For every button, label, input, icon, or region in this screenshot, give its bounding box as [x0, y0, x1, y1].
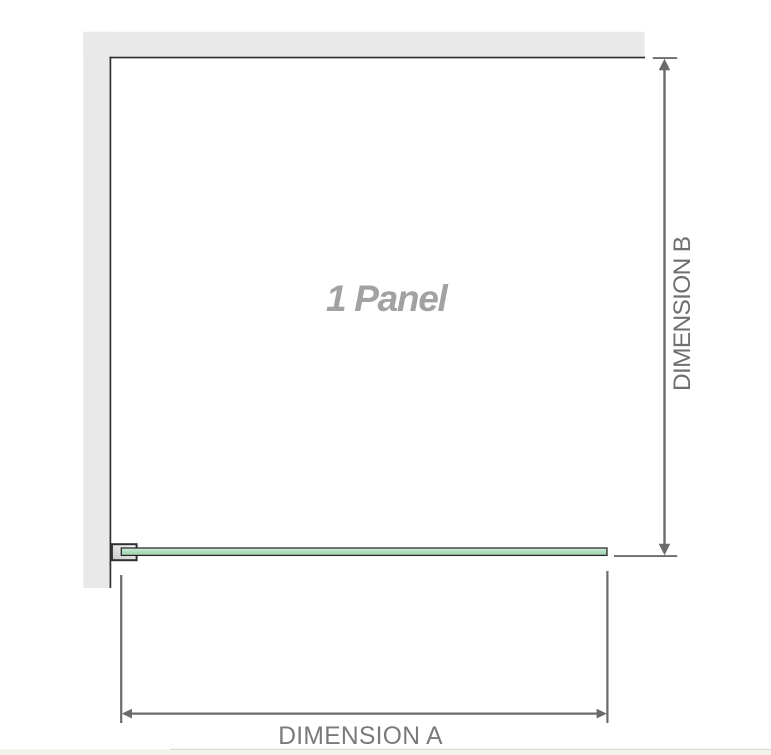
svg-text:DIMENSION A: DIMENSION A: [278, 723, 443, 750]
svg-text:DIMENSION B: DIMENSION B: [669, 236, 696, 391]
svg-text:1 Panel: 1 Panel: [326, 278, 448, 319]
